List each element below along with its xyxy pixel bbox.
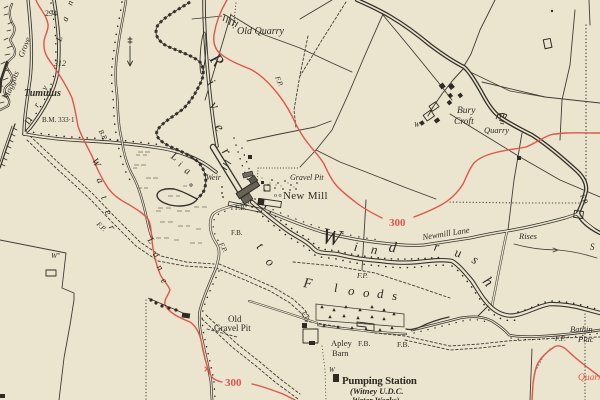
svg-text:B.M. 333·1: B.M. 333·1: [42, 116, 75, 124]
svg-text:F.B.: F.B.: [358, 339, 370, 348]
svg-text:Bathin: Bathin: [570, 324, 593, 334]
svg-text:o o: o o: [274, 193, 282, 199]
svg-text:294: 294: [45, 9, 57, 18]
svg-text:Weir: Weir: [206, 173, 222, 182]
svg-text:Water Works): Water Works): [352, 395, 400, 400]
svg-text:New Mill: New Mill: [283, 190, 328, 202]
svg-text:o: o: [363, 285, 370, 300]
svg-text:F.P.: F.P.: [356, 271, 368, 280]
svg-text:Gravel Pit: Gravel Pit: [214, 323, 251, 333]
svg-text:Gravel Pit: Gravel Pit: [290, 173, 324, 182]
svg-text:300: 300: [389, 217, 406, 229]
svg-text:Quarry: Quarry: [484, 125, 509, 135]
svg-text:Rises: Rises: [518, 231, 538, 241]
svg-text:Old Quarry: Old Quarry: [237, 26, 285, 37]
svg-text:Quarr: Quarr: [578, 373, 600, 383]
svg-text:d: d: [377, 286, 384, 301]
svg-text:Plac: Plac: [577, 334, 594, 344]
svg-text:300: 300: [225, 377, 242, 389]
svg-text:Wº: Wº: [51, 251, 60, 260]
svg-text:Bury: Bury: [457, 106, 476, 116]
svg-text:Croft: Croft: [454, 116, 474, 127]
svg-text:o: o: [348, 283, 355, 298]
svg-text:F.B.: F.B.: [397, 340, 409, 349]
svg-text:S: S: [590, 242, 595, 252]
svg-text:F.B.: F.B.: [235, 204, 247, 212]
svg-text:s: s: [392, 288, 397, 303]
svg-text:Apley: Apley: [331, 338, 353, 348]
svg-text:Barn: Barn: [332, 348, 349, 358]
svg-text:l: l: [334, 280, 338, 295]
svg-text:F.P.: F.P.: [554, 334, 566, 343]
svg-text:F.B.: F.B.: [231, 229, 243, 237]
svg-text:312: 312: [53, 59, 66, 68]
